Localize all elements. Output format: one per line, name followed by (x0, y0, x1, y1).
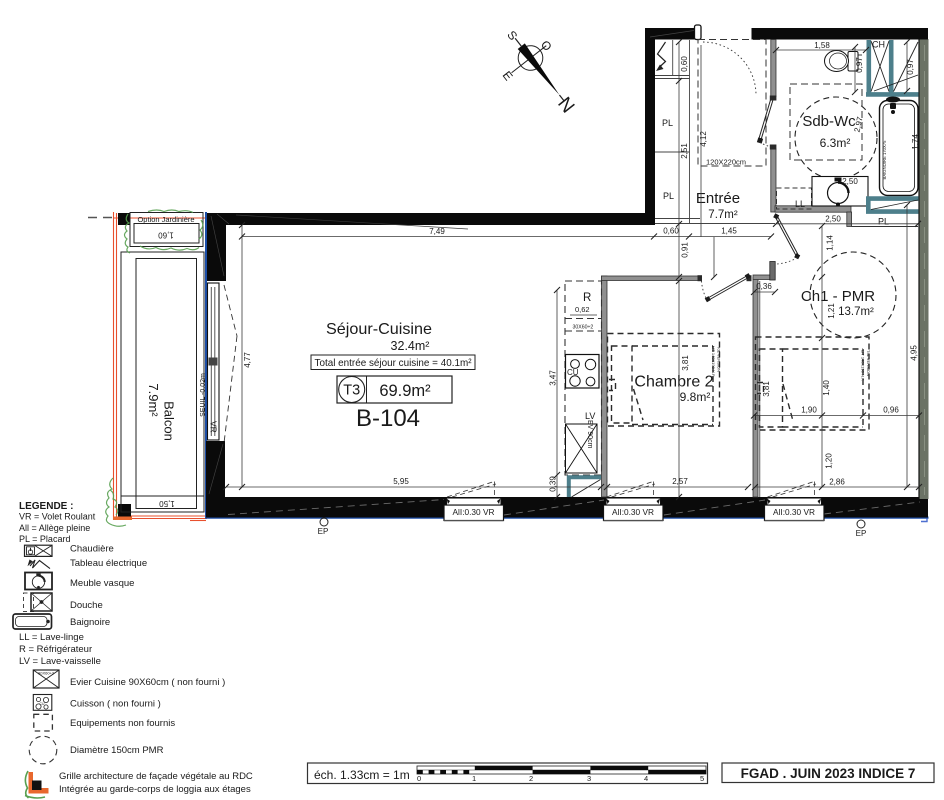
svg-text:2,86: 2,86 (829, 478, 845, 487)
svg-text:1,90: 1,90 (801, 406, 817, 415)
svg-text:2,50: 2,50 (825, 215, 841, 224)
svg-text:LV = Lave-vaisselle: LV = Lave-vaisselle (19, 656, 101, 667)
svg-text:PL: PL (662, 118, 673, 128)
svg-text:Séjour-Cuisine: Séjour-Cuisine (326, 321, 432, 338)
svg-text:Douche: Douche (70, 600, 103, 611)
svg-text:AlI:0.30 VR: AlI:0.30 VR (612, 507, 654, 517)
svg-text:7,49: 7,49 (429, 227, 445, 236)
svg-text:1,14: 1,14 (826, 235, 835, 251)
svg-text:1: 1 (472, 774, 476, 783)
svg-text:1,21: 1,21 (827, 303, 836, 319)
svg-text:Ch1 - PMR: Ch1 - PMR (801, 288, 875, 305)
svg-text:Evier Cuisine 90X60cm ( non fo: Evier Cuisine 90X60cm ( non fourni ) (70, 677, 225, 688)
svg-text:5: 5 (700, 774, 704, 783)
svg-text:120X220cm: 120X220cm (706, 158, 746, 167)
svg-text:T3: T3 (343, 383, 360, 399)
svg-text:1,50: 1,50 (159, 499, 175, 508)
svg-text:13.7m²: 13.7m² (838, 306, 874, 318)
svg-text:30X60÷2: 30X60÷2 (573, 325, 594, 331)
svg-text:Cuisson ( non fourni ): Cuisson ( non fourni ) (70, 699, 161, 710)
svg-text:4,95: 4,95 (910, 345, 919, 361)
svg-text:0,36: 0,36 (756, 282, 772, 291)
svg-text:3,81: 3,81 (762, 381, 771, 397)
svg-text:EP: EP (856, 529, 867, 538)
svg-text:FGAD . JUIN 2023 INDICE 7: FGAD . JUIN 2023 INDICE 7 (741, 766, 916, 781)
svg-text:Grille architecture de façade: Grille architecture de façade végétale a… (59, 771, 253, 782)
svg-text:69.9m²: 69.9m² (379, 382, 431, 400)
svg-text:EP: EP (318, 527, 329, 536)
svg-text:EV 90cm: EV 90cm (586, 420, 593, 449)
svg-text:1,40: 1,40 (822, 380, 831, 396)
svg-text:0,97: 0,97 (855, 57, 864, 73)
svg-text:0,91: 0,91 (681, 242, 690, 258)
svg-text:Chaudière: Chaudière (70, 544, 114, 555)
svg-text:1,45: 1,45 (721, 227, 737, 236)
svg-text:LL = Lave-linge: LL = Lave-linge (19, 632, 84, 643)
svg-text:0,39: 0,39 (549, 476, 558, 492)
svg-text:7.9m²: 7.9m² (146, 383, 161, 417)
svg-text:BAIGNOIRE 170X75: BAIGNOIRE 170X75 (882, 140, 887, 180)
svg-text:1,74: 1,74 (911, 134, 920, 150)
svg-text:0,96: 0,96 (883, 406, 899, 415)
svg-text:Option Jardinière: Option Jardinière (137, 215, 194, 224)
svg-text:0: 0 (417, 774, 421, 783)
svg-text:2,57: 2,57 (672, 477, 688, 486)
svg-text:All = Allège pleine: All = Allège pleine (19, 523, 90, 533)
svg-text:Diamètre 150cm PMR: Diamètre 150cm PMR (70, 745, 164, 756)
svg-text:6.3m²: 6.3m² (820, 136, 851, 150)
svg-text:0,62: 0,62 (575, 305, 590, 314)
svg-text:LIT 140X190 N.F.: LIT 140X190 N.F. (711, 346, 716, 377)
svg-text:4,12: 4,12 (699, 131, 708, 147)
svg-text:Chambre 2: Chambre 2 (634, 374, 713, 391)
svg-text:9.8m²: 9.8m² (680, 390, 711, 404)
svg-text:1,20: 1,20 (825, 453, 834, 469)
svg-text:PL: PL (663, 191, 674, 201)
svg-text:4,77: 4,77 (243, 352, 252, 368)
svg-text:90X60+2: 90X60+2 (38, 671, 55, 676)
svg-text:0,60: 0,60 (663, 227, 679, 236)
svg-text:CU: CU (40, 702, 45, 706)
svg-text:LL: LL (795, 199, 805, 209)
svg-text:Meuble vasque: Meuble vasque (70, 578, 134, 589)
svg-text:2,51: 2,51 (680, 143, 689, 159)
svg-text:PL = Placard: PL = Placard (19, 534, 70, 544)
svg-text:R: R (583, 292, 591, 304)
svg-text:CU: CU (567, 368, 579, 377)
svg-text:TdL VERSION: TdL VERSION (717, 346, 722, 372)
svg-text:1,58: 1,58 (814, 41, 830, 50)
svg-text:AlI:0.30 VR: AlI:0.30 VR (453, 507, 495, 517)
svg-text:1,60: 1,60 (158, 231, 174, 240)
svg-text:LIT 140X190 N.F.: LIT 140X190 N.F. (861, 350, 866, 381)
svg-text:CH: CH (872, 40, 885, 50)
svg-text:B-104: B-104 (356, 405, 420, 432)
svg-text:éch. 1.33cm = 1m: éch. 1.33cm = 1m (314, 768, 410, 782)
svg-text:Balcon: Balcon (162, 401, 177, 441)
svg-text:7.7m²: 7.7m² (708, 209, 738, 221)
svg-text:Equipements non fournis: Equipements non fournis (70, 718, 175, 729)
svg-text:5,95: 5,95 (393, 477, 409, 486)
svg-text:0,60: 0,60 (680, 56, 689, 72)
svg-text:3,47: 3,47 (549, 370, 558, 386)
svg-text:4: 4 (644, 774, 648, 783)
svg-text:LEGENDE :: LEGENDE : (19, 501, 73, 512)
svg-text:0,97: 0,97 (906, 59, 915, 75)
svg-text:Tableau électrique: Tableau électrique (70, 558, 147, 569)
svg-text:3,81: 3,81 (681, 355, 690, 371)
svg-text:Total entrée séjour cuisine =: Total entrée séjour cuisine = 40.1m² (315, 357, 472, 369)
svg-text:2,50: 2,50 (842, 177, 858, 186)
svg-text:32.4m²: 32.4m² (391, 339, 430, 353)
svg-text:Intégrée au garde-corps de log: Intégrée au garde-corps de loggia aux ét… (59, 784, 251, 795)
svg-text:Baignoire: Baignoire (70, 617, 110, 628)
svg-text:2: 2 (529, 774, 533, 783)
svg-text:Entrée: Entrée (696, 190, 740, 207)
svg-text:VR = Volet Roulant: VR = Volet Roulant (19, 512, 96, 522)
svg-text:TdL VERSION: TdL VERSION (866, 350, 871, 376)
svg-text:Sdb-Wc: Sdb-Wc (802, 113, 856, 130)
svg-text:AlI:0.30 VR: AlI:0.30 VR (773, 507, 815, 517)
svg-text:R = Réfrigérateur: R = Réfrigérateur (19, 644, 92, 655)
svg-text:PL: PL (878, 217, 889, 227)
svg-text:3: 3 (587, 774, 591, 783)
svg-text:VR: VR (209, 421, 219, 433)
